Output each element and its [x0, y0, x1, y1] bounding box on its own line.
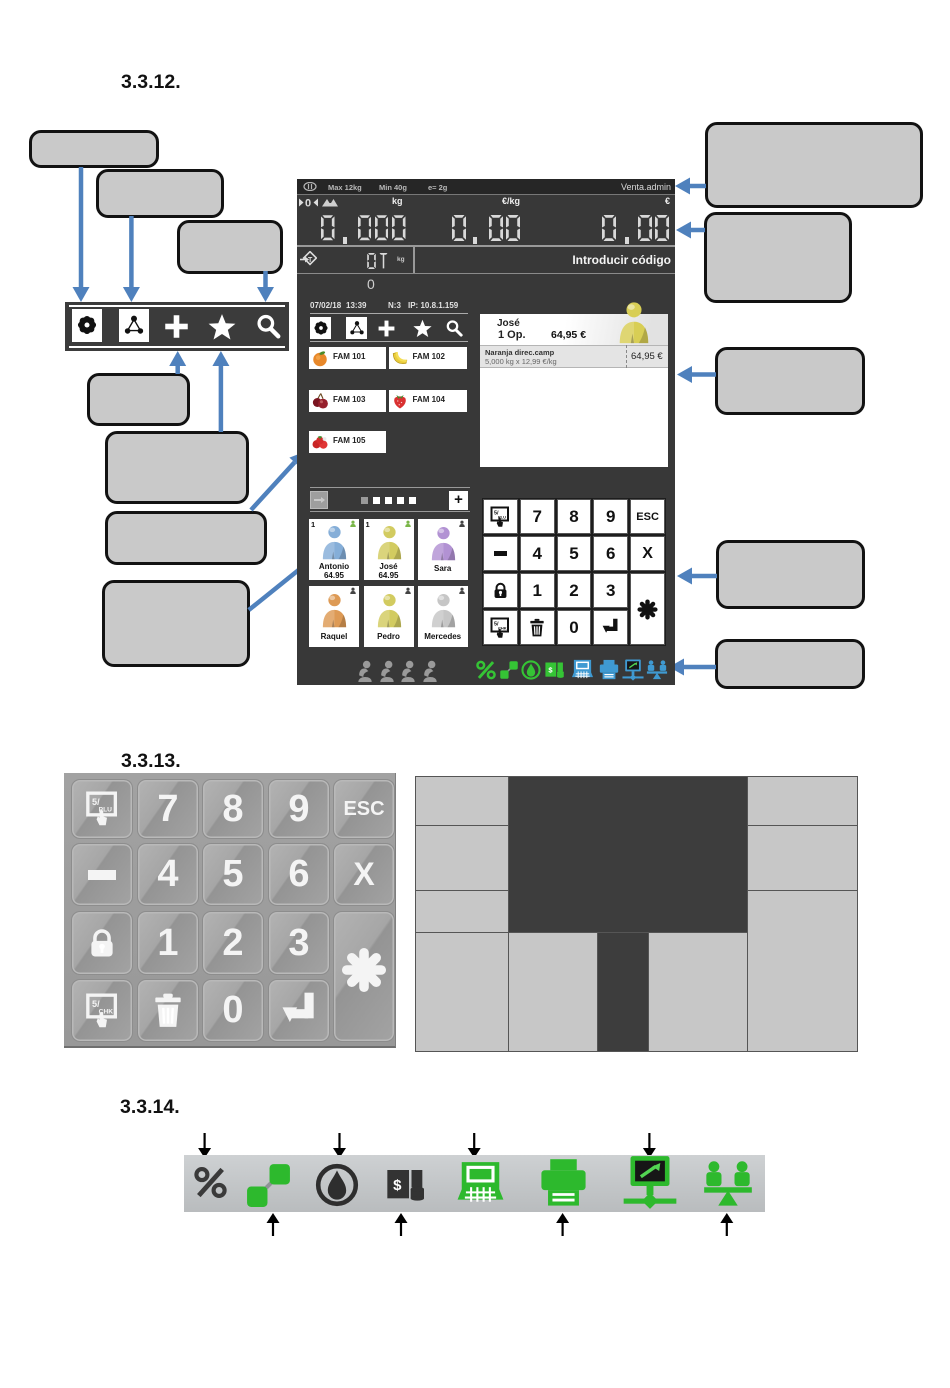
- svg-text:T: T: [308, 257, 313, 264]
- svg-text:0: 0: [305, 198, 311, 209]
